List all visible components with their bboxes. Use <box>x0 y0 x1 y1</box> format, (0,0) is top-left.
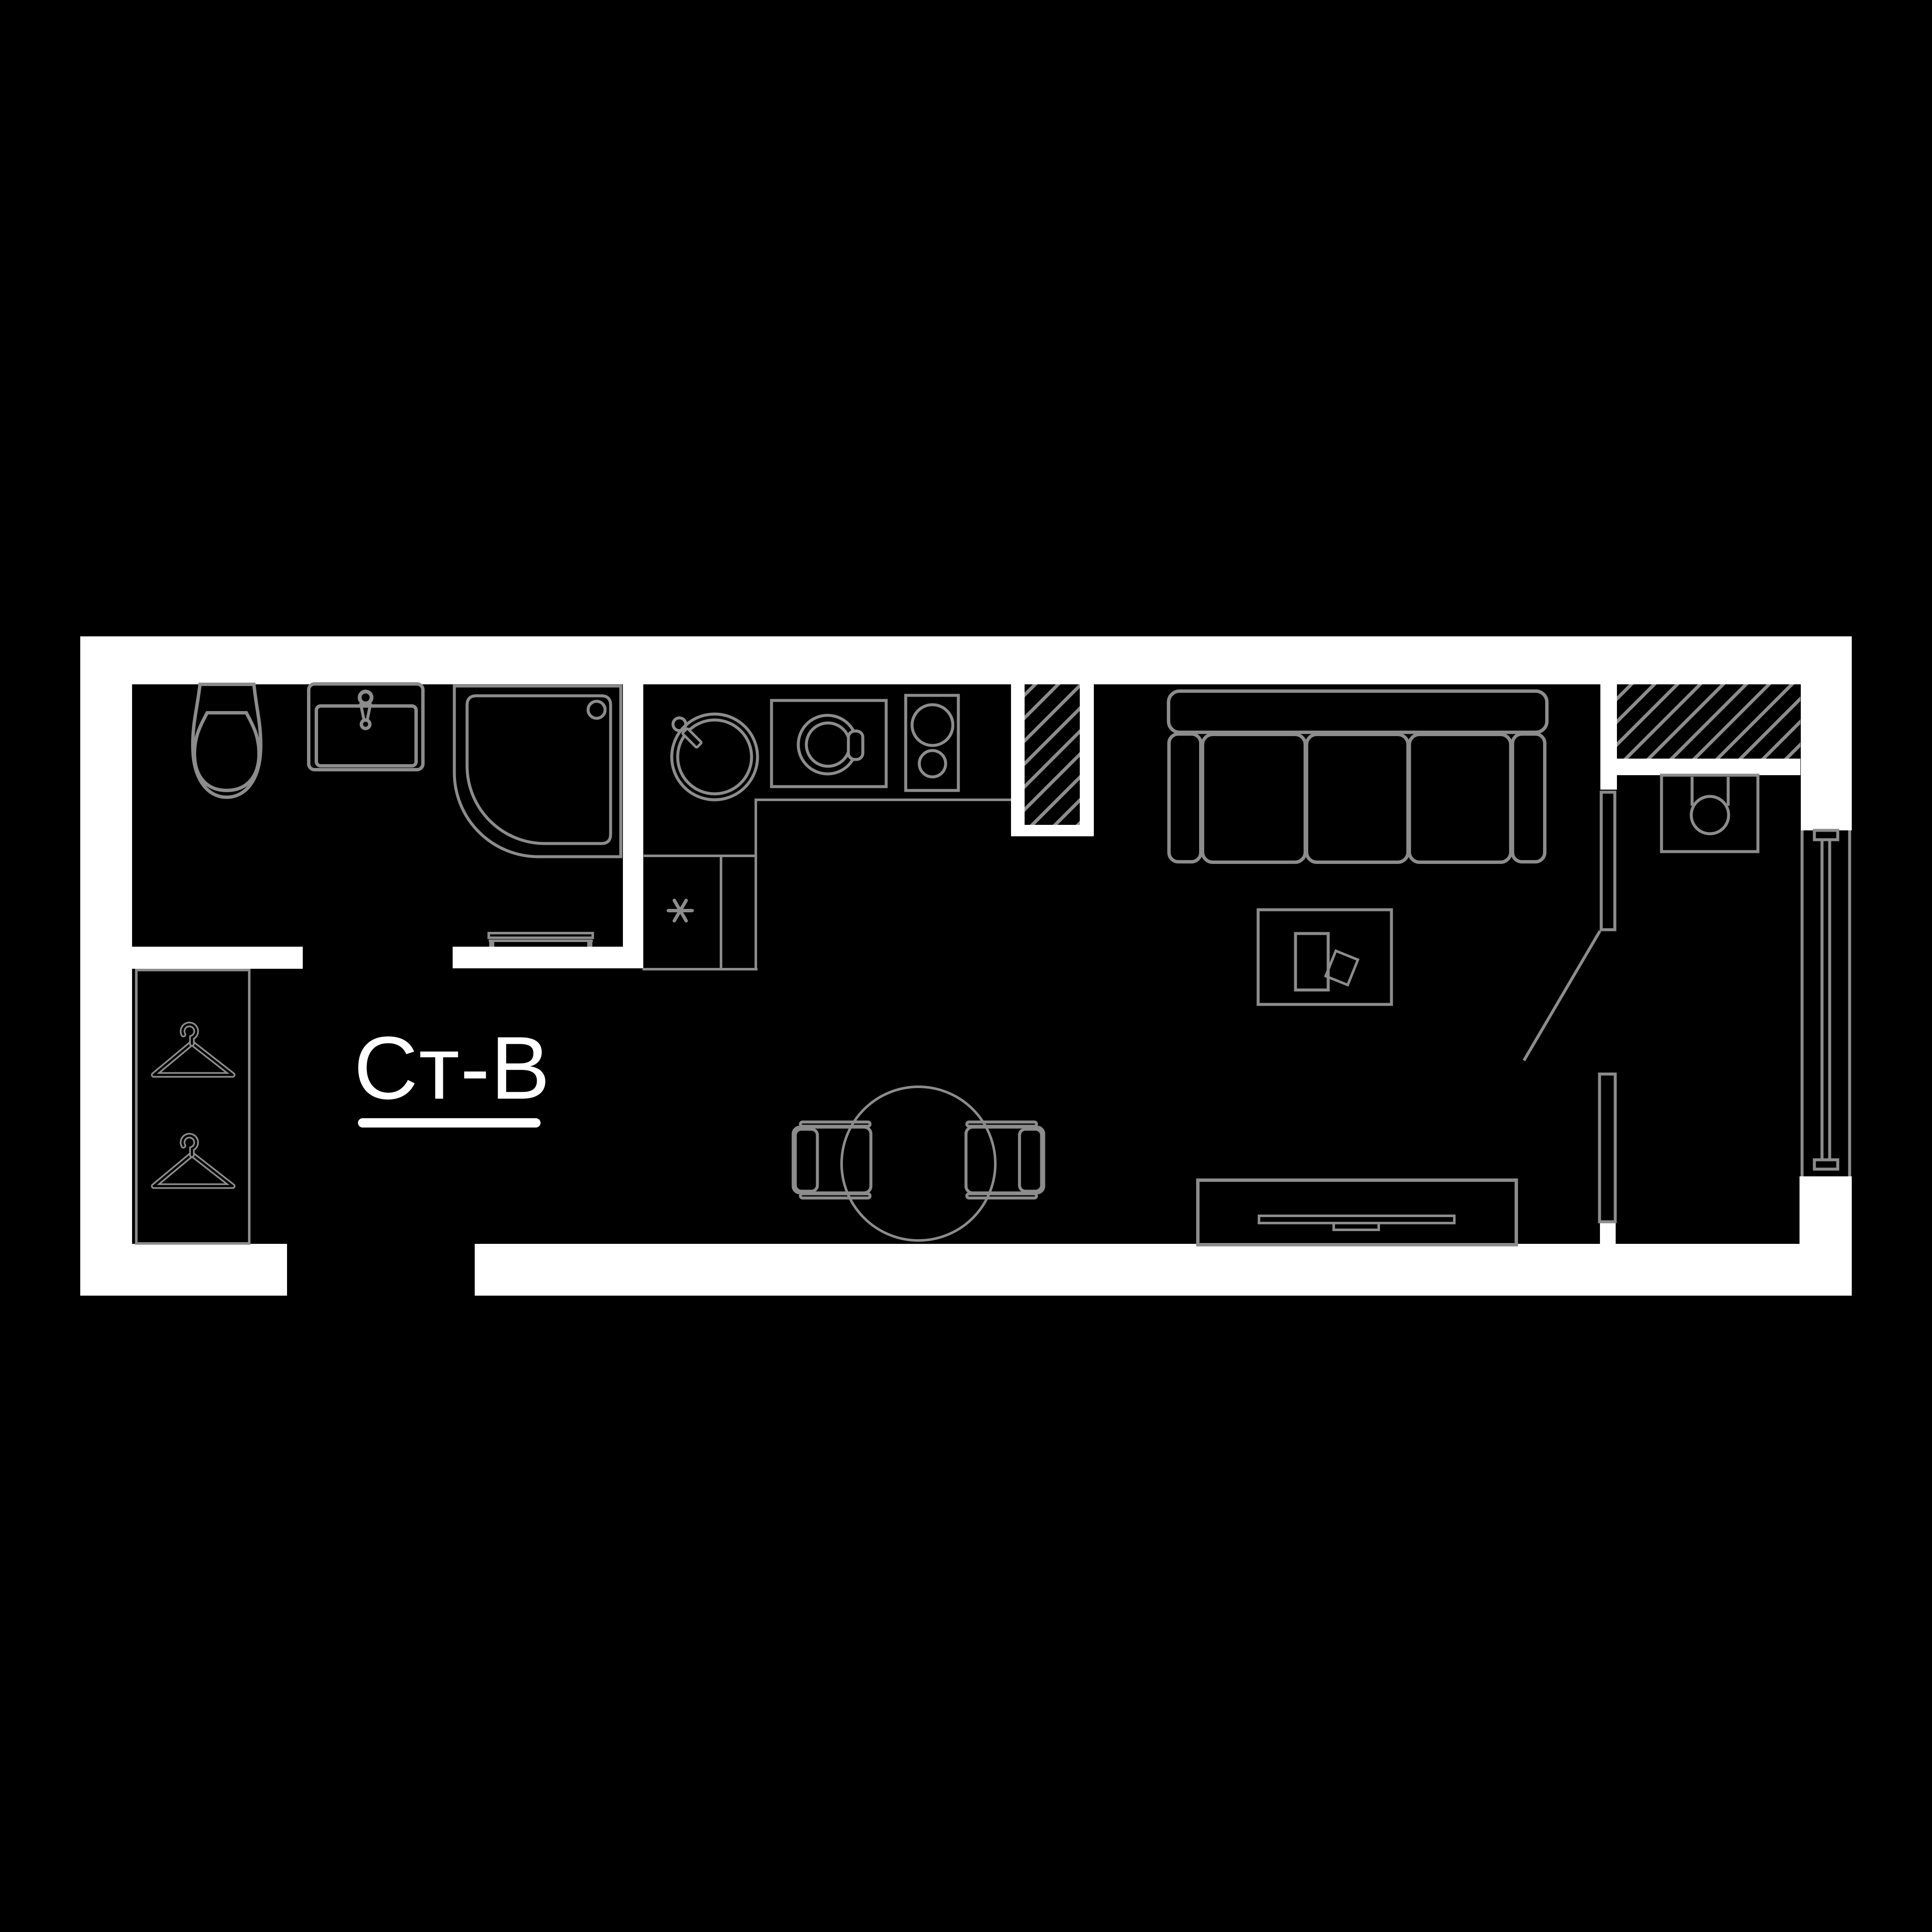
svg-text:Ст-В: Ст-В <box>354 1018 551 1118</box>
